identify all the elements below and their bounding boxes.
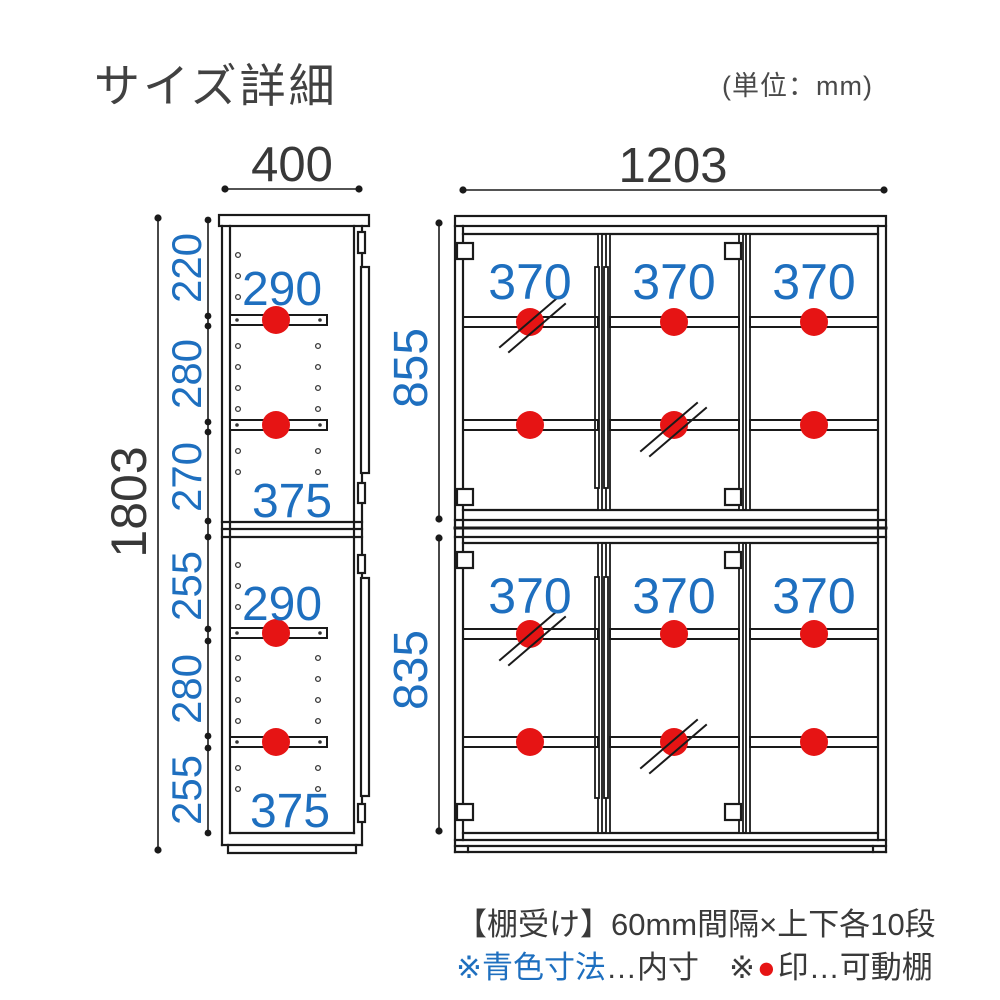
front-lower-height-dimension: 835	[385, 534, 443, 834]
side-shelf-end-dots	[235, 318, 322, 744]
front-shelves	[463, 317, 878, 747]
front-upper-shelf-width-2: 370	[632, 254, 715, 310]
side-lower-segment-3: 255	[163, 755, 210, 825]
front-lower-shelf-width-3: 370	[772, 568, 855, 624]
side-upper-segment-3: 270	[163, 442, 210, 512]
side-height-label: 1803	[101, 446, 157, 557]
side-inner-dimension-line	[205, 217, 212, 837]
side-lower-bottom-depth-label: 375	[250, 785, 330, 838]
legend-shelf-support-note: 【棚受け】60mm間隔×上下各10段	[456, 906, 976, 943]
side-height-dimension: 1803	[101, 214, 162, 853]
legend-row-2: ※青色寸法…内寸※●印…可動棚	[456, 949, 976, 986]
front-lower-shelf-width-1: 370	[488, 568, 571, 624]
side-movable-shelf-marks	[262, 306, 290, 756]
front-lower-shelf-width-2: 370	[632, 568, 715, 624]
front-movable-shelf-marks	[516, 308, 828, 756]
front-upper-height-dimension: 855	[385, 219, 443, 522]
front-lower-height-label: 835	[385, 630, 438, 710]
side-lower-segment-2: 280	[163, 654, 210, 724]
side-upper-shelf-depth-label: 290	[242, 263, 322, 316]
legend: 【棚受け】60mm間隔×上下各10段 ※青色寸法…内寸※●印…可動棚	[456, 906, 976, 986]
side-upper-bottom-depth-label: 375	[252, 475, 332, 528]
legend-red-mark-prefix: ※	[729, 950, 755, 985]
front-width-dimension: 1203	[459, 139, 887, 194]
front-width-label: 1203	[618, 139, 727, 193]
side-view: 400 1803 220 280 270 25	[101, 138, 369, 854]
legend-red-mark-meaning: 印…可動棚	[778, 950, 933, 985]
legend-blue-dim-meaning: …内寸	[606, 950, 699, 985]
side-upper-segment-2: 280	[163, 339, 210, 409]
side-width-label: 400	[251, 138, 333, 192]
size-detail-diagram-page: { "header": { "title": "サイズ詳細", "unit_no…	[0, 0, 1000, 1000]
cabinet-diagram-svg: 400 1803 220 280 270 25	[0, 0, 1000, 1000]
side-width-dimension: 400	[221, 138, 362, 193]
front-upper-shelf-width-3: 370	[772, 254, 855, 310]
front-upper-height-label: 855	[385, 328, 438, 408]
front-view: 1203 855 835	[385, 139, 888, 852]
movable-shelf-dot-icon: ●	[757, 950, 776, 985]
legend-blue-dim-label: ※青色寸法	[456, 950, 606, 985]
side-upper-segment-1: 220	[163, 233, 210, 303]
front-upper-shelf-width-1: 370	[488, 254, 571, 310]
side-shelves	[230, 315, 327, 747]
side-lower-segment-1: 255	[163, 551, 210, 621]
side-lower-shelf-depth-label: 290	[242, 578, 322, 631]
